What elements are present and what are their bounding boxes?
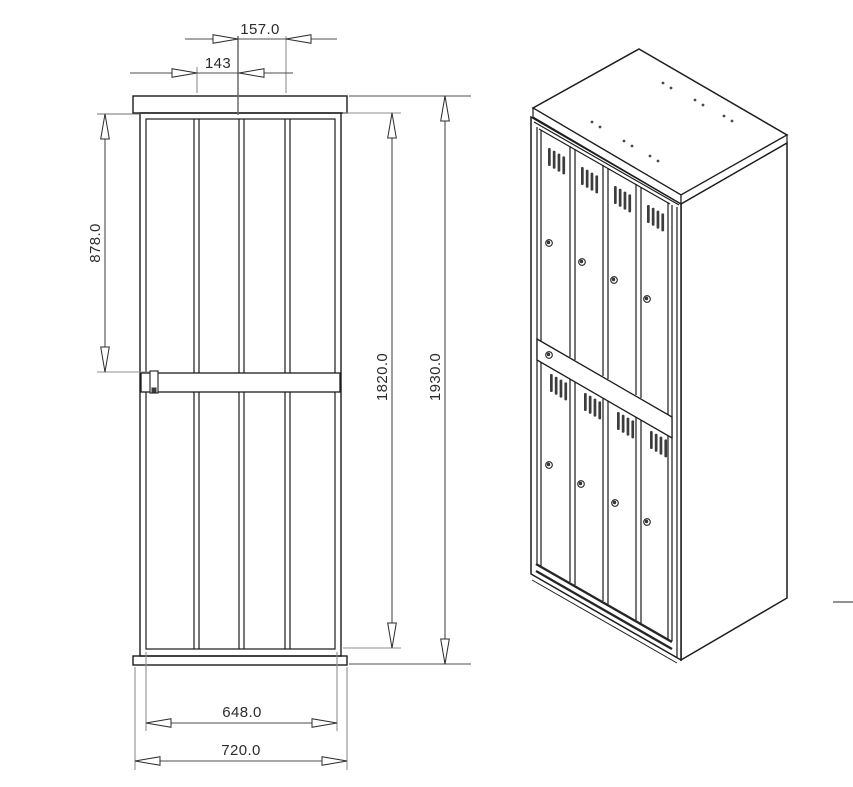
arrowhead-icon [101,347,110,372]
dimension-right-outer: 1930.0 [349,96,471,664]
dimension-value: 878.0 [87,223,104,263]
front-middle-rail [141,373,340,392]
arrowhead-icon [146,719,171,728]
lock-knob [546,462,553,469]
dimension-value: 720.0 [221,742,261,759]
dimension-value: 1820.0 [374,353,391,401]
dimension-right-inner: 1820.0 [343,113,401,648]
isometric-view [531,49,787,663]
arrowhead-icon [172,69,197,78]
lock-knob [644,519,651,526]
cad-sheet: 157.0 143 878.0 1820.0 [0,0,853,787]
dimension-value: 1930.0 [427,353,444,401]
lock-knob [579,259,586,266]
arrowhead-icon [213,35,238,44]
dimensions: 157.0 143 878.0 1820.0 [87,21,471,770]
front-view [133,96,347,665]
drawing-canvas: 157.0 143 878.0 1820.0 [0,0,853,787]
arrowhead-icon [388,113,397,138]
front-top-cap [133,96,347,113]
front-mullions-upper [194,119,290,373]
front-base [133,656,347,665]
arrowhead-icon [239,69,264,78]
arrowhead-icon [441,96,450,121]
dimension-value: 648.0 [222,704,262,721]
dimension-value: 143 [205,55,231,72]
arrowhead-icon [101,114,110,139]
lock-knob [612,500,619,507]
lock-knob [611,277,618,284]
front-rail-latch-plate [152,388,157,393]
dimension-value: 157.0 [240,21,280,38]
lock-knob [546,352,553,359]
arrowhead-icon [388,623,397,648]
arrowhead-icon [312,719,337,728]
lock-knob [546,240,553,247]
dimension-bottom-inner: 648.0 [146,652,337,731]
arrowhead-icon [286,35,311,44]
arrowhead-icon [322,757,347,766]
arrowhead-icon [441,639,450,664]
lock-knob [644,296,651,303]
front-mullions-lower [194,392,290,649]
arrowhead-icon [135,757,160,766]
dimension-top-inner: 143 [130,55,293,93]
lock-knob [578,481,585,488]
iso-right-face [681,143,787,660]
